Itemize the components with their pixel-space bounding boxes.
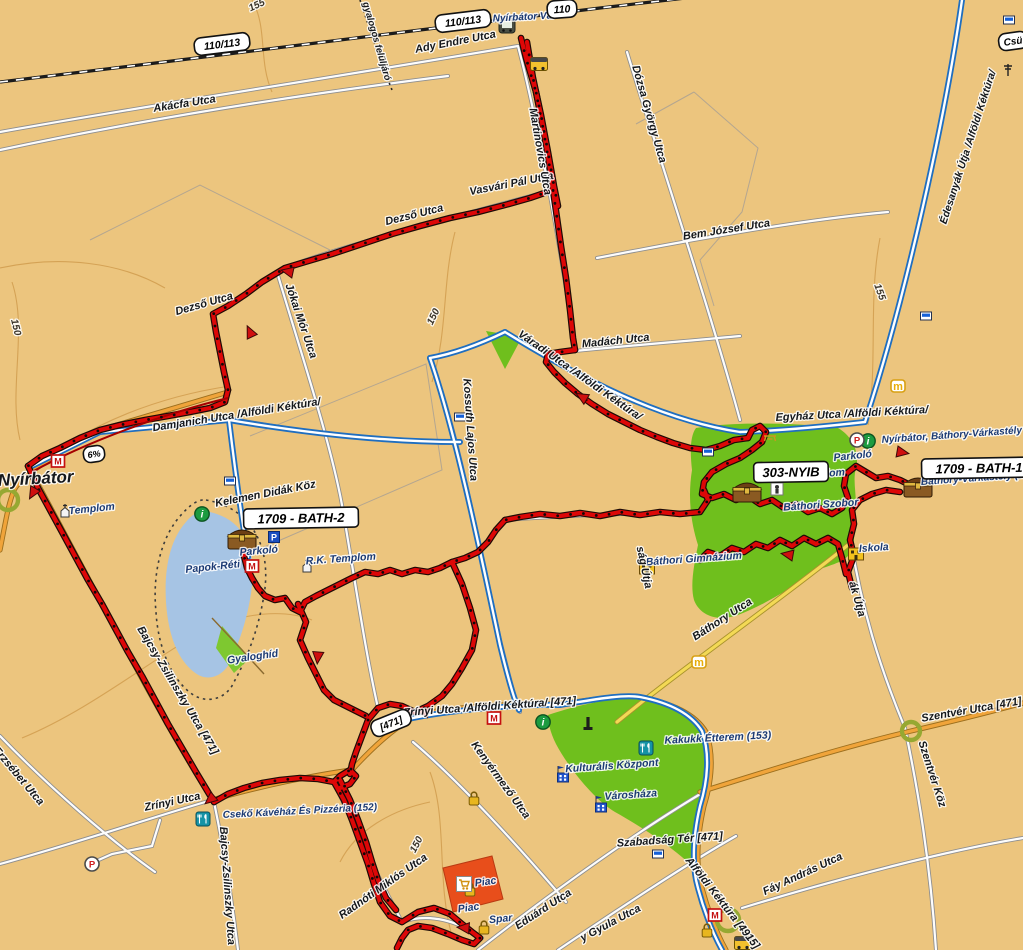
museum-icon[interactable]: M	[709, 909, 722, 921]
statue-icon[interactable]	[771, 483, 783, 495]
grade-badge-6pct[interactable]: 6%	[82, 445, 105, 464]
parking-icon[interactable]: P	[85, 857, 99, 871]
info-icon[interactable]: i	[536, 715, 550, 729]
svg-text:M: M	[490, 713, 498, 723]
road-badge-110-text: 110	[553, 3, 571, 16]
waypoint-badge-303nyib[interactable]: 303-NYIB	[754, 461, 829, 482]
parking-icon[interactable]: P	[850, 433, 864, 447]
parking-icon-blue[interactable]: P	[269, 532, 280, 543]
m-marker-icon[interactable]: m	[692, 656, 706, 669]
m-marker-icon[interactable]: m	[891, 380, 905, 393]
shopping-cart-icon[interactable]	[457, 877, 472, 892]
poi-spar: Spar	[488, 912, 513, 926]
svg-text:M: M	[248, 561, 256, 571]
trail-blaze-icon[interactable]	[703, 448, 714, 456]
road-badge-110[interactable]: 110	[547, 0, 578, 19]
trail-blaze-icon[interactable]	[225, 477, 236, 485]
waypoint-badge-bath2-text: 1709 - BATH-2	[257, 510, 345, 527]
museum-icon[interactable]: M	[246, 560, 259, 572]
city-label-nyirbator: Nyírbátor	[0, 467, 75, 490]
poi-iskola: Iskola	[859, 541, 890, 555]
svg-text:m: m	[893, 381, 903, 393]
waypoint-badge-bath2[interactable]: 1709 - BATH-2	[243, 507, 358, 529]
waypoint-badge-303nyib-text: 303-NYIB	[762, 464, 819, 480]
museum-icon[interactable]: M	[52, 455, 65, 467]
trail-blaze-icon[interactable]	[921, 312, 932, 320]
restaurant-icon[interactable]	[196, 812, 210, 826]
waypoint-badge-bath1[interactable]: 1709 - BATH-1	[921, 457, 1023, 479]
grade-badge-6pct-text: 6%	[87, 448, 101, 460]
svg-text:i: i	[542, 718, 545, 729]
svg-text:P: P	[271, 532, 277, 542]
museum-icon[interactable]: M	[488, 712, 501, 724]
svg-text:P: P	[89, 859, 96, 870]
svg-text:M: M	[711, 910, 719, 920]
waypoint-badge-bath1-text: 1709 - BATH-1	[935, 460, 1022, 477]
svg-text:M: M	[54, 456, 62, 466]
svg-text:i: i	[201, 510, 204, 521]
svg-text:m: m	[694, 657, 704, 669]
trail-blaze-icon[interactable]	[653, 850, 664, 858]
geocache-chest-icon[interactable]	[733, 483, 761, 502]
map-svg[interactable]: i i i P P P M M M M	[0, 0, 1023, 950]
trail-blaze-icon[interactable]	[1004, 16, 1015, 24]
restaurant-icon[interactable]	[639, 741, 653, 755]
map-canvas[interactable]: i i i P P P M M M M	[0, 0, 1023, 950]
bus-stop-icon[interactable]	[531, 58, 548, 71]
svg-text:i: i	[867, 437, 870, 448]
svg-text:P: P	[854, 435, 861, 446]
info-icon[interactable]: i	[195, 507, 209, 521]
